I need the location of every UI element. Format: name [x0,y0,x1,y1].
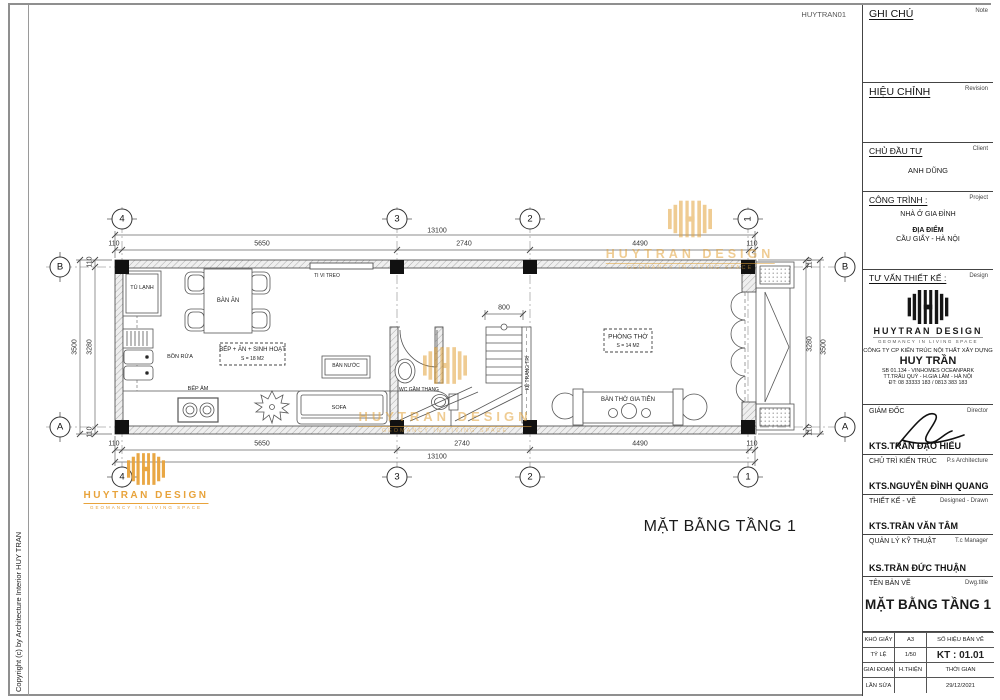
grid-col-1: 1 [745,472,750,483]
location-label: ĐỊA ĐIỂM [863,227,993,234]
date-value: 29/12/2021 [926,677,994,693]
dim-left-110: 110 [87,256,94,267]
grid-col-3: 3 [394,472,399,483]
tb-drawn-section: THIẾT KẾ - VẼ Designed - Drawn KTS.TRẦN … [863,495,993,535]
dim-right-110: 110 [807,424,814,435]
dim-left-inner: 3280 [87,339,94,355]
copyright-text: Copyright (c) by Architecture Interior H… [14,532,23,692]
sheet-code: HUYTRAN01 [740,10,846,19]
grid-row-a: A [842,422,848,433]
architect-label: CHỦ TRÌ KIẾN TRÚC [869,458,937,465]
dim-total-bottom: 13100 [427,454,446,461]
fridge-label: TỦ LẠNH [130,285,154,291]
scale-value: 1/50 [894,647,926,662]
dim-seg: 110 [746,441,757,448]
tb-manager-section: QUẢN LÝ KỸ THUẬT T.c Manager KS.TRẦN ĐỨC… [863,535,993,577]
grid-row-a: A [57,422,63,433]
worship-room-name: PHÒNG THỜ [608,334,648,341]
altar-label: BÀN THỜ GIA TIÊN [601,397,655,403]
toilet-tank [449,394,458,410]
sheet-number-value: KT : 01.01 [926,647,994,662]
client-label-en: Client [973,146,988,152]
company-phone: ĐT: 08 33333 183 / 0813 383 183 [863,380,993,386]
tb-design-section: TƯ VẤN THIẾT KẾ : Design HUYTRAN DESIGN … [863,270,993,405]
cooktop [178,398,218,422]
ramp-arrow [765,347,789,402]
project-label-en: Project [969,195,988,201]
architect-name: KTS.NGUYỄN ĐÌNH QUANG [869,481,989,491]
time-label: THỜI GIAN [926,662,994,677]
dim-seg: 2740 [454,441,470,448]
dim-total-top: 13100 [427,228,446,235]
dim-seg: 5650 [254,241,270,248]
dining-table-label: BÀN ĂN [217,298,239,304]
tb-architect-section: CHỦ TRÌ KIẾN TRÚC P.s Architecture KTS.N… [863,455,993,495]
dim-seg: 5650 [254,441,270,448]
drawing-sheet: 4 3 2 1 4 3 2 1 B A B A 13100 110 5650 2… [0,0,1000,700]
grid-lines [46,207,857,490]
folding-door-leaf [731,348,745,376]
dim-seg: 4490 [632,441,648,448]
dim-right-total: 3500 [821,339,828,355]
note-label-en: Note [975,8,988,14]
dim-left-110: 110 [87,426,94,437]
grid-col-4: 4 [119,214,124,225]
revision-label-en: Revision [965,86,988,92]
folding-door-leaf [736,376,745,402]
architect-label-en: P.s Architecture [947,458,988,464]
dim-right-110: 110 [807,257,814,268]
manager-label: QUẢN LÝ KỸ THUẬT [869,538,936,545]
tb-project-section: CÔNG TRÌNH : Project NHÀ Ở GIA ĐÌNH ĐỊA … [863,192,993,270]
drawn-name: KTS.TRẦN VĂN TÂM [869,521,958,531]
watermark-logo-icon [423,347,467,384]
paper-size-label: KHỔ GIẤY [863,632,894,647]
paper-size-value: A3 [894,632,926,647]
stove-label: BẾP ÂM [188,386,209,392]
grid-col-4: 4 [119,472,124,483]
tv-label: TI VI TREO [314,273,340,279]
shelf-label: KỆ TRANG TRÍ [525,356,531,391]
grid-col-3: 3 [394,214,399,225]
grid-col-2: 2 [527,214,532,225]
note-label: GHI CHÚ [869,8,913,20]
dim-left-total: 3500 [72,339,79,355]
tea-table-label: BÀN NƯỚC [332,363,359,369]
phase-value: H.THIỆN [894,662,926,677]
dim-seg: 4490 [632,241,648,248]
stool [681,394,707,420]
tb-dwg-title-section: TÊN BẢN VẼ Dwg.title MẶT BẰNG TẦNG 1 [863,577,993,632]
dim-seg: 110 [108,241,119,248]
company-tagline: GEOMANCY IN LIVING SPACE [873,337,983,344]
tb-revision-section: HIỆU CHỈNH Revision [863,83,993,143]
grid-col-1: 1 [743,216,754,221]
fridge [123,271,161,316]
manager-label-en: T.c Manager [955,538,988,544]
company-brand-name: HUYTRAN DESIGN [863,326,993,336]
tb-client-section: CHỦ ĐẦU TƯ Client ANH DŨNG [863,143,993,192]
manager-name: KS.TRẦN ĐỨC THUẬN [869,563,966,573]
dim-right-inner: 3280 [807,336,814,352]
company-type: CÔNG TY CP KIẾN TRÚC NỘI THẤT XÂY DỰNG [863,348,993,354]
project-name: NHÀ Ở GIA ĐÌNH [863,211,993,218]
kitchen-room-name: BẾP + ĂN + SINH HOẠT [219,347,286,353]
sofa-label: SOFA [332,405,347,411]
title-block: GHI CHÚ Note HIỆU CHỈNH Revision CHỦ ĐẦU… [862,5,993,696]
scale-label: TỶ LỆ [863,647,894,662]
folding-door-leaf [731,292,745,320]
dwg-title-value: MẶT BẰNG TẦNG 1 [863,597,993,612]
company-name: HUY TRẦN [863,355,993,367]
tb-note-section: GHI CHÚ Note [863,5,993,83]
dim-seg: 110 [108,441,119,448]
client-name: ANH DŨNG [863,166,993,175]
wc-label: WC GẦM THANG [399,387,439,393]
design-label: TƯ VẤN THIẾT KẾ : [869,273,946,283]
director-name: KTS.TRẦN ĐẠO HIẾU [869,441,961,451]
grid-row-b: B [842,262,848,273]
tb-info-table: KHỔ GIẤY A3 SỐ HIỆU BẢN VẼ TỶ LỆ 1/50 KT… [863,632,993,694]
worship-room-area: S = 14 M2 [617,343,640,349]
dim-seg: 110 [746,241,757,248]
entrance [731,262,794,430]
phase-label: GIAI ĐOẠN [863,662,894,677]
tb-director-section: GIÁM ĐỐC Director KTS.TRẦN ĐẠO HIẾU [863,405,993,455]
dwg-title-label-en: Dwg.title [965,580,988,586]
design-label-en: Design [969,273,988,279]
location-value: CẦU GIẤY - HÀ NỘI [863,236,993,243]
tv-unit [310,263,373,269]
altar-set [552,389,707,425]
project-label: CÔNG TRÌNH : [869,195,927,205]
folding-door-leaf [731,320,745,348]
revision-count-value [894,677,926,693]
sink-label: BỒN RỬA [167,354,193,360]
kitchen-counter [123,271,451,426]
plan-title: MẶT BẰNG TẦNG 1 [644,518,797,536]
watermark-logo-icon [668,201,712,238]
watermark-logo-icon [127,453,165,485]
dim-stair: 800 [498,305,510,312]
dim-seg: 2740 [456,241,472,248]
kitchen-room-area: S = 18 M2 [241,356,264,362]
revision-label: HIỆU CHỈNH [869,86,930,98]
grid-col-2: 2 [527,472,532,483]
revision-count-label: LẦN SỬA [863,677,894,693]
grid-row-b: B [57,262,63,273]
sheet-number-label: SỐ HIỆU BẢN VẼ [926,632,994,647]
floor-plan-svg [0,0,1000,700]
ramp-arrow [765,292,789,347]
company-logo-icon [906,290,950,324]
drawn-label-en: Designed - Drawn [940,498,988,504]
plant [255,391,289,423]
drawn-label: THIẾT KẾ - VẼ [869,498,916,505]
dwg-title-label: TÊN BẢN VẼ [869,580,911,587]
client-label: CHỦ ĐẦU TƯ [869,146,922,156]
sink-drainer [123,329,153,348]
